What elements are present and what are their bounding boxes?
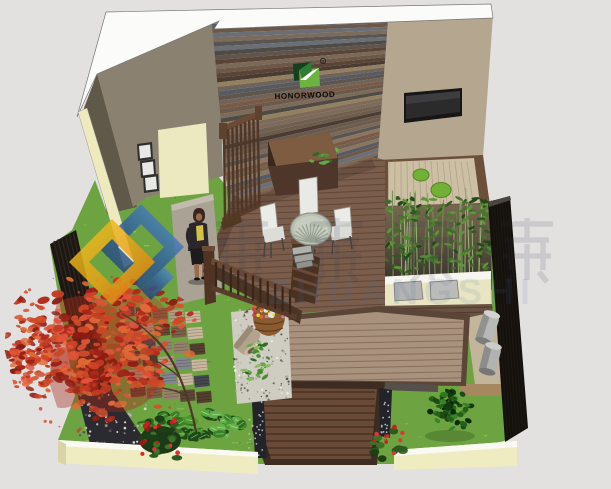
svg-text:R: R bbox=[322, 59, 325, 64]
svg-text:ZHUANGSHI: ZHUANGSHI bbox=[268, 271, 536, 312]
